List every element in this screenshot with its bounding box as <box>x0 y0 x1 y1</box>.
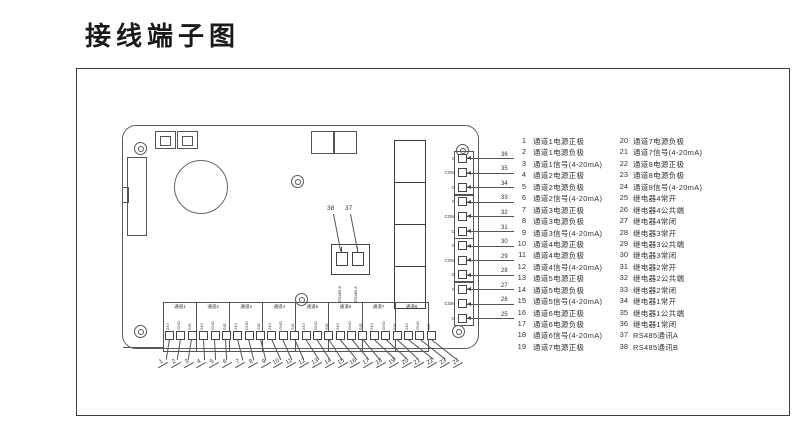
connector-jack-icon <box>177 131 198 149</box>
relay-terminal-label: COM <box>440 214 458 219</box>
terminal-number-cell: 20 <box>399 359 412 366</box>
channel-terminal: GND <box>379 302 390 352</box>
terminal-number-cell: 12 <box>296 359 309 366</box>
legend-item-number: 21 <box>615 147 628 156</box>
legend-item-number: 23 <box>615 170 628 179</box>
channel-terminal: SIG <box>254 302 265 352</box>
legend-item-number: 14 <box>515 285 526 294</box>
legend-item: 18 通道6信号(4-20mA) <box>515 330 602 341</box>
terminal-number: 32 <box>501 210 508 216</box>
legend-item-number: 20 <box>615 136 628 145</box>
channel-terminal: GND <box>345 302 356 352</box>
rs485-pin <box>336 252 348 266</box>
terminal-leader: 26 <box>467 296 514 311</box>
terminal-number-cell: 9 <box>258 359 271 366</box>
legend-item-number: 36 <box>615 319 628 328</box>
channel-terminal-label: GND <box>245 310 249 330</box>
legend-item-text: 继电器1常闭 <box>633 319 676 330</box>
channel-terminal: 24V <box>265 302 276 352</box>
legend-item: 6 通道2信号(4-20mA) <box>515 193 602 204</box>
channel-terminal-label: 24V <box>336 310 340 330</box>
legend-item-text: 继电器4公共端 <box>633 205 684 216</box>
terminal-number-cell: 7 <box>232 359 245 366</box>
legend-item: 15 通道5信号(4-20mA) <box>515 296 602 307</box>
relay-box <box>394 140 426 183</box>
legend-item: 31 继电器2常开 <box>615 262 702 273</box>
legend-item: 25 继电器4常开 <box>615 193 702 204</box>
relay-terminal-label: COM <box>440 258 458 263</box>
legend-item-text: 继电器1公共端 <box>633 308 684 319</box>
legend-item-number: 25 <box>615 193 628 202</box>
legend-item-text: RS485通讯B <box>633 342 678 353</box>
arrow-icon <box>467 244 471 248</box>
channel-terminal: SIG <box>220 302 231 352</box>
page: 接线端子图 38 37 RS485 B RS485 A C 36 COM <box>0 0 805 433</box>
relay-terminal-row: C 33 <box>440 195 514 210</box>
legend-item: 13 通道5电源正极 <box>515 273 602 284</box>
legend-item-number: 27 <box>615 216 628 225</box>
arrow-icon <box>467 171 471 175</box>
legend-item-text: 继电器3常闭 <box>633 250 676 261</box>
terminal-square <box>458 212 467 221</box>
channel-terminal: 24V <box>402 302 413 352</box>
terminal-number-cell: 18 <box>373 359 386 366</box>
leader-line <box>467 231 514 232</box>
round-component <box>174 160 228 214</box>
arrow-icon <box>467 214 471 218</box>
legend-item-text: RS485通讯A <box>633 330 678 341</box>
terminal-number-cell: 10 <box>270 359 283 366</box>
relay-terminal-row: O 25 <box>440 311 514 326</box>
channel-terminal-label: 24V <box>234 310 238 330</box>
terminal-square <box>458 183 467 192</box>
legend-item: 2 通道1电源负极 <box>515 147 602 158</box>
terminal-number-cell: 24 <box>450 359 463 366</box>
terminal-square <box>458 256 467 265</box>
terminal-leader: 29 <box>467 253 514 268</box>
screw-hole <box>134 142 147 155</box>
legend-item-number: 37 <box>615 330 628 339</box>
legend-item-number: 5 <box>515 182 526 191</box>
relay-terminal-label: O <box>440 272 458 277</box>
legend-item-text: 继电器1常开 <box>633 296 676 307</box>
channel-terminal-label: SIG <box>359 310 363 330</box>
terminal-number: 25 <box>501 312 508 318</box>
terminal-number: 26 <box>501 297 508 303</box>
legend-item-text: 继电器2常开 <box>633 262 676 273</box>
legend-item-text: 通道2电源正极 <box>533 170 584 181</box>
legend-item-text: 通道4信号(4-20mA) <box>533 262 602 273</box>
relay-terminal-label: C <box>440 243 458 248</box>
legend-item-text: 继电器3常开 <box>633 228 676 239</box>
terminal-number-cell: 19 <box>386 359 399 366</box>
connector-jack-icon <box>155 131 176 149</box>
legend-item-number: 11 <box>515 250 526 259</box>
legend-item: 34 继电器1常开 <box>615 296 702 307</box>
terminal-leader: 30 <box>467 238 514 253</box>
terminal-leader: 35 <box>467 166 514 181</box>
leader-line <box>467 289 514 290</box>
terminal-square <box>458 154 467 163</box>
channel-terminal: SIG <box>322 302 333 352</box>
screw-hole <box>291 175 304 188</box>
leader-line <box>467 216 514 217</box>
channel-terminal-label: GND <box>382 310 386 330</box>
legend-item-number: 16 <box>515 308 526 317</box>
power-connector-slot <box>311 131 335 154</box>
leader-line <box>467 275 514 276</box>
legend-left-column: 1 通道1电源正极 2 通道1电源负极 3 通道1信号(4-20mA) 4 通道… <box>515 136 602 353</box>
channel-terminal: GND <box>174 302 185 352</box>
legend-item: 5 通道2电源负极 <box>515 182 602 193</box>
channel-terminal: SIG <box>186 302 197 352</box>
terminal-leader: 25 <box>467 311 514 326</box>
relay-terminal-label: C <box>440 287 458 292</box>
legend-item-text: 继电器2公共端 <box>633 273 684 284</box>
terminal-number-cell: 4 <box>193 359 206 366</box>
relay-terminal-row: C 30 <box>440 238 514 253</box>
channel-terminal-label: SIG <box>257 310 261 330</box>
relay-terminal-row: COM 26 <box>440 296 514 311</box>
legend-item-number: 24 <box>615 182 628 191</box>
legend-item: 27 继电器4常闭 <box>615 216 702 227</box>
terminal-square <box>458 168 467 177</box>
legend-item: 1 通道1电源正极 <box>515 136 602 147</box>
terminal-square <box>458 227 467 236</box>
channel-terminal: SIG <box>356 302 367 352</box>
terminal-leader: 34 <box>467 180 514 195</box>
relay-terminal-label: COM <box>440 170 458 175</box>
legend-item-text: 通道7信号(4-20mA) <box>633 147 702 158</box>
legend-item-number: 6 <box>515 193 526 202</box>
channel-terminal: 24V <box>300 302 311 352</box>
channel-terminal: SIG <box>288 302 299 352</box>
legend-item-number: 1 <box>515 136 526 145</box>
terminal-leader: 33 <box>467 195 514 210</box>
legend-item-number: 10 <box>515 239 526 248</box>
legend-item-text: 通道5信号(4-20mA) <box>533 296 602 307</box>
legend-item: 38 RS485通讯B <box>615 342 702 353</box>
screw-hole <box>452 325 465 338</box>
terminal-square <box>458 241 467 250</box>
legend-item-text: 通道1电源正极 <box>533 136 584 147</box>
terminal-square <box>458 314 467 323</box>
legend-item: 14 通道5电源负极 <box>515 285 602 296</box>
legend-item-text: 通道3信号(4-20mA) <box>533 228 602 239</box>
relay-terminal-label: O <box>440 185 458 190</box>
legend-item: 23 通道8电源负极 <box>615 170 702 181</box>
legend-item-text: 通道1电源负极 <box>533 147 584 158</box>
legend-item: 29 继电器3公共端 <box>615 239 702 250</box>
terminal-number-cell: 14 <box>322 359 335 366</box>
terminal-leader: 27 <box>467 282 514 297</box>
legend-item-number: 38 <box>615 342 628 351</box>
terminal-number: 35 <box>501 166 508 172</box>
terminal-number-cell: 23 <box>437 359 450 366</box>
channel-terminal: GND <box>243 302 254 352</box>
relay-box <box>394 182 426 225</box>
rs485-pin-tick <box>341 247 342 252</box>
channel-terminal: GND <box>209 302 220 352</box>
relay-terminal-label: COM <box>440 301 458 306</box>
rs485-pin-number: 38 <box>327 205 334 212</box>
channel-terminal-label: SIG <box>325 310 329 330</box>
terminal-number-cell: 17 <box>360 359 373 366</box>
legend-item: 35 继电器1公共端 <box>615 308 702 319</box>
terminal-number-cell: 21 <box>412 359 425 366</box>
legend-item: 26 继电器4公共端 <box>615 205 702 216</box>
terminal-number-cell: 6 <box>219 359 232 366</box>
channel-terminal-label: GND <box>314 310 318 330</box>
channel-terminal-label: SIG <box>188 310 192 330</box>
rs485-pin-number: 37 <box>345 205 352 212</box>
legend-item-number: 22 <box>615 159 628 168</box>
channel-terminal-label: GND <box>279 310 283 330</box>
legend-item: 3 通道1信号(4-20mA) <box>515 159 602 170</box>
legend-item: 24 通道8信号(4-20mA) <box>615 182 702 193</box>
channel-terminal: SIG <box>425 302 436 352</box>
legend-item: 32 继电器2公共端 <box>615 273 702 284</box>
terminal-number-cell: 5 <box>206 359 219 366</box>
arrow-icon <box>467 229 471 233</box>
relay-box <box>394 224 426 267</box>
channel-terminal-numbers: 1 2 3 4 5 6 7 8 9 10 11 12 13 14 15 <box>155 359 463 366</box>
legend-item-number: 34 <box>615 296 628 305</box>
legend-item-text: 通道4电源正极 <box>533 239 584 250</box>
channel-terminal-label: 24V <box>302 310 306 330</box>
relay-terminal-label: C <box>440 199 458 204</box>
legend-item-text: 通道5电源正极 <box>533 273 584 284</box>
legend-item-text: 通道8信号(4-20mA) <box>633 182 702 193</box>
legend-item: 17 通道6电源负极 <box>515 319 602 330</box>
legend-item-text: 继电器4常开 <box>633 193 676 204</box>
relay-terminal-row: O 28 <box>440 267 514 282</box>
channel-terminal-label: GND <box>177 310 181 330</box>
channel-terminal: 24V <box>334 302 345 352</box>
leader-line <box>467 304 514 305</box>
legend-item-text: 继电器2常闭 <box>633 285 676 296</box>
channel-terminal: GND <box>413 302 424 352</box>
legend-item-text: 通道1信号(4-20mA) <box>533 159 602 170</box>
legend-item-text: 通道7电源正极 <box>533 342 584 353</box>
channel-terminal-label: GND <box>348 310 352 330</box>
legend-item: 7 通道3电源正极 <box>515 205 602 216</box>
legend-item-number: 3 <box>515 159 526 168</box>
channel-terminal: GND <box>277 302 288 352</box>
terminal-number-cell: 11 <box>283 359 296 366</box>
terminal-number-cell: 22 <box>424 359 437 366</box>
legend-item-text: 通道4电源负极 <box>533 250 584 261</box>
channel-terminal-label: 24V <box>166 310 170 330</box>
channel-terminal-label: 24V <box>405 310 409 330</box>
channel-terminal-label: SIG <box>427 310 431 330</box>
legend-item: 10 通道4电源正极 <box>515 239 602 250</box>
legend-item-text: 通道6电源正极 <box>533 308 584 319</box>
legend-item-text: 通道2电源负极 <box>533 182 584 193</box>
terminal-leader: 31 <box>467 224 514 239</box>
legend-item-text: 继电器3公共端 <box>633 239 684 250</box>
legend-item: 33 继电器2常闭 <box>615 285 702 296</box>
legend-item-number: 13 <box>515 273 526 282</box>
legend-item: 4 通道2电源正极 <box>515 170 602 181</box>
legend-item-text: 通道6电源负极 <box>533 319 584 330</box>
terminal-square <box>458 197 467 206</box>
legend-item: 9 通道3信号(4-20mA) <box>515 228 602 239</box>
legend-item-number: 4 <box>515 170 526 179</box>
channel-terminal-columns: 24V GND SIG 24V GND SIG 24V <box>163 302 436 352</box>
terminal-square <box>222 331 231 340</box>
legend-item-text: 继电器4常闭 <box>633 216 676 227</box>
terminal-square <box>188 331 197 340</box>
legend-item: 22 通道8电源正极 <box>615 159 702 170</box>
terminal-number-cell: 13 <box>309 359 322 366</box>
legend-item-number: 2 <box>515 147 526 156</box>
terminal-square <box>458 299 467 308</box>
terminal-square <box>458 285 467 294</box>
arrow-icon <box>467 156 471 160</box>
leader-line <box>467 318 514 319</box>
terminal-number-cell: 15 <box>335 359 348 366</box>
legend-item-number: 32 <box>615 273 628 282</box>
relay-terminal-row: C 36 <box>440 151 514 166</box>
terminal-number: 27 <box>501 283 508 289</box>
channel-terminal-label: SIG <box>393 310 397 330</box>
terminal-number-cell: 2 <box>168 359 181 366</box>
terminal-number-cell: 16 <box>347 359 360 366</box>
terminal-leader: 36 <box>467 151 514 166</box>
legend-item-text: 通道2信号(4-20mA) <box>533 193 602 204</box>
rs485-pin-label: RS485 A <box>354 276 358 302</box>
legend-item-number: 15 <box>515 296 526 305</box>
legend-item: 16 通道6电源正极 <box>515 308 602 319</box>
legend-item-number: 35 <box>615 308 628 317</box>
channel-terminal-label: 24V <box>370 310 374 330</box>
legend-right-column: 20 通道7电源负极 21 通道7信号(4-20mA) 22 通道8电源正极 2… <box>615 136 702 353</box>
channel-terminal: SIG <box>391 302 402 352</box>
legend-item-number: 29 <box>615 239 628 248</box>
legend-item: 20 通道7电源负极 <box>615 136 702 147</box>
legend-item-number: 31 <box>615 262 628 271</box>
legend-item-text: 通道8电源负极 <box>633 170 684 181</box>
legend-item: 8 通道3电源负极 <box>515 216 602 227</box>
arrow-icon <box>467 185 471 189</box>
channel-terminal: 24V <box>163 302 174 352</box>
legend-item: 37 RS485通讯A <box>615 330 702 341</box>
relay-terminal-row: O 34 <box>440 180 514 195</box>
terminal-number: 36 <box>501 152 508 158</box>
legend-item-number: 26 <box>615 205 628 214</box>
terminal-square <box>458 270 467 279</box>
terminal-number-cell: 3 <box>181 359 194 366</box>
channel-terminal: GND <box>311 302 322 352</box>
terminal-number: 29 <box>501 254 508 260</box>
channel-terminal-label: GND <box>211 310 215 330</box>
terminal-leader: 28 <box>467 267 514 282</box>
arrow-icon <box>467 287 471 291</box>
legend-item-number: 7 <box>515 205 526 214</box>
relay-terminal-row: COM 35 <box>440 166 514 181</box>
legend-item-number: 9 <box>515 228 526 237</box>
arrow-icon <box>467 273 471 277</box>
channel-terminal-label: 24V <box>200 310 204 330</box>
terminal-number-cell: 8 <box>245 359 258 366</box>
channel-terminal-label: 24V <box>268 310 272 330</box>
terminal-number: 28 <box>501 268 508 274</box>
leader-line <box>467 260 514 261</box>
leader-line <box>467 187 514 188</box>
legend-item-number: 12 <box>515 262 526 271</box>
terminal-leader: 32 <box>467 209 514 224</box>
legend-item-number: 28 <box>615 228 628 237</box>
relay-terminal-label: O <box>440 316 458 321</box>
legend-item-text: 通道8电源正极 <box>633 159 684 170</box>
relay-terminal-rows: C 36 COM 35 O 34 C 33 COM 32 O 31 C 30 <box>440 151 514 326</box>
channel-terminal: 24V <box>368 302 379 352</box>
leader-line <box>467 246 514 247</box>
terminal-number-cell: 1 <box>155 359 168 366</box>
legend-item-number: 18 <box>515 330 526 339</box>
legend-item-text: 通道5电源负极 <box>533 285 584 296</box>
arrow-icon <box>467 258 471 262</box>
relay-terminal-row: COM 32 <box>440 209 514 224</box>
relay-terminal-row: O 31 <box>440 224 514 239</box>
legend-item-number: 30 <box>615 250 628 259</box>
channel-terminal: 24V <box>197 302 208 352</box>
legend-item: 19 通道7电源正极 <box>515 342 602 353</box>
legend-item: 12 通道4信号(4-20mA) <box>515 262 602 273</box>
arrow-icon <box>467 200 471 204</box>
leader-line <box>467 202 514 203</box>
screw-hole <box>134 325 147 338</box>
terminal-number: 34 <box>501 181 508 187</box>
legend-item-number: 33 <box>615 285 628 294</box>
channel-terminal-label: SIG <box>223 310 227 330</box>
relay-terminal-label: C <box>440 156 458 161</box>
arrow-icon <box>467 302 471 306</box>
page-title: 接线端子图 <box>85 16 240 53</box>
legend-item: 30 继电器3常闭 <box>615 250 702 261</box>
legend-item-text: 通道3电源负极 <box>533 216 584 227</box>
legend-item-number: 19 <box>515 342 526 351</box>
side-connector <box>127 157 147 236</box>
power-connector-slot <box>333 131 357 154</box>
rs485-pin <box>352 252 364 266</box>
terminal-number: 30 <box>501 239 508 245</box>
leader-line <box>467 173 514 174</box>
legend-item: 21 通道7信号(4-20mA) <box>615 147 702 158</box>
side-connector-notch <box>122 187 129 203</box>
legend-item-number: 8 <box>515 216 526 225</box>
relay-terminal-row: COM 29 <box>440 253 514 268</box>
relay-terminal-row: C 27 <box>440 282 514 297</box>
board-edge-line <box>123 347 164 348</box>
channel-terminal-label: SIG <box>291 310 295 330</box>
channel-terminal-label: GND <box>416 310 420 330</box>
terminal-number: 33 <box>501 195 508 201</box>
channel-terminal: 24V <box>231 302 242 352</box>
legend-item-text: 通道3电源正极 <box>533 205 584 216</box>
legend-item-text: 通道6信号(4-20mA) <box>533 330 602 341</box>
arrow-icon <box>467 316 471 320</box>
legend-item-text: 通道7电源负极 <box>633 136 684 147</box>
legend-item-number: 17 <box>515 319 526 328</box>
relay-terminal-label: O <box>440 229 458 234</box>
legend-item: 36 继电器1常闭 <box>615 319 702 330</box>
rs485-pin-label: RS485 B <box>338 276 342 302</box>
leader-line <box>467 158 514 159</box>
terminal-number: 31 <box>501 225 508 231</box>
legend-item: 28 继电器3常开 <box>615 228 702 239</box>
